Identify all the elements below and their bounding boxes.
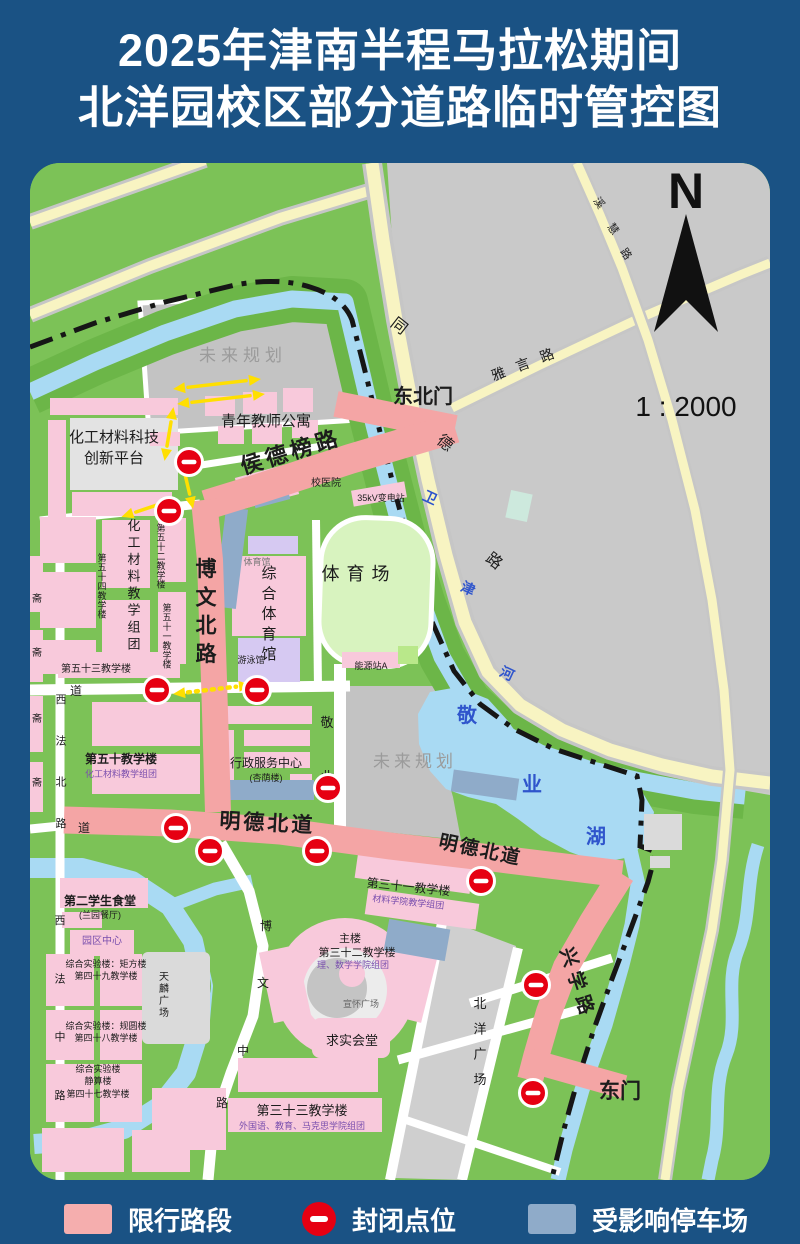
- map-label: 综合实验楼：矩方楼: [65, 958, 146, 969]
- map-label: 湖: [586, 825, 606, 848]
- legend-item-parking: 受影响停车场: [528, 1194, 748, 1244]
- map-label: 理、数学学院组团: [317, 959, 389, 970]
- map-label: 业: [522, 773, 542, 796]
- map-label: 能源站A: [354, 660, 387, 671]
- closure-bar: [150, 688, 165, 693]
- closure-bar: [250, 688, 265, 693]
- map-label: 第四十七教学楼: [66, 1088, 129, 1099]
- legend: 限行路段 封闭点位 受影响停车场: [0, 1194, 800, 1244]
- map-label: 创新平台: [84, 450, 144, 467]
- map-canvas: N1 : 2000未来规划未来规划青年教师公寓化工材料科技创新平台侯德榜路东北门…: [30, 163, 770, 1180]
- parking-swatch: [528, 1204, 576, 1234]
- map-label: 第五十三教学楼: [61, 662, 131, 675]
- map-label: 第五十四教学楼: [97, 552, 106, 620]
- map-label: 综合实验楼: [75, 1063, 120, 1074]
- map-label: N: [668, 163, 704, 219]
- map-label: 综合实验楼：规圆楼: [65, 1020, 146, 1031]
- map-shape: [216, 706, 312, 724]
- map-label: 园区中心: [82, 934, 122, 947]
- map-label: 静算楼: [84, 1075, 111, 1086]
- map-shape: [283, 388, 313, 412]
- map-label: 第四十八教学楼: [74, 1032, 137, 1043]
- restricted-road-swatch: [64, 1204, 112, 1234]
- closure-bar: [169, 826, 184, 831]
- map-label: 斋: [32, 776, 42, 789]
- map-shape: [238, 1058, 378, 1092]
- map-label: 化工材料科技: [69, 429, 159, 446]
- map-label: 斋: [32, 592, 42, 605]
- map-label: 中: [237, 1043, 249, 1058]
- closure-marker: [197, 838, 224, 865]
- map-shape: [48, 420, 66, 522]
- map-label: 第五十二教学楼: [156, 522, 165, 590]
- closure-bar: [526, 1091, 541, 1096]
- closure-marker: [163, 815, 190, 842]
- map-label: 35kV变电站: [357, 492, 405, 503]
- map-label: 体育馆: [243, 556, 270, 567]
- page-title: 2025年津南半程马拉松期间 北洋园校区部分道路临时管控图: [0, 22, 800, 136]
- map-label: 道: [78, 821, 90, 835]
- closure-bar: [310, 849, 325, 854]
- map-label: 斋: [32, 712, 42, 725]
- legend-item-restricted: 限行路段: [64, 1194, 232, 1244]
- map-label: 青年教师公寓: [221, 412, 311, 430]
- map-label: 斋: [32, 646, 42, 659]
- map-label: 宣怀广场: [343, 998, 379, 1009]
- map-label: 天麟广场: [159, 972, 169, 1019]
- page-title-line1: 2025年津南半程马拉松期间: [0, 22, 800, 79]
- map-label: (兰园餐厅): [79, 909, 121, 920]
- map-label: 第五十教学楼: [85, 751, 157, 766]
- closure-marker: [176, 449, 203, 476]
- stadium-field: [317, 516, 434, 668]
- map-label: 外国语、教育、马克思学院组团: [239, 1120, 365, 1131]
- closure-bar: [162, 509, 177, 514]
- closure-point-icon: [302, 1202, 336, 1236]
- closure-marker: [244, 677, 271, 704]
- closure-bar: [529, 983, 544, 988]
- legend-item-closure: 封闭点位: [302, 1194, 456, 1244]
- page: { "title": {"line1": "2025年津南半程马拉松期间", "…: [0, 0, 800, 1244]
- map-label: 明德北道: [219, 809, 316, 838]
- closure-marker: [156, 498, 183, 525]
- parking-lot: [218, 780, 314, 800]
- map-label: 敬: [320, 715, 333, 730]
- map-frame: N1 : 2000未来规划未来规划青年教师公寓化工材料科技创新平台侯德榜路东北门…: [30, 163, 770, 1180]
- map-label: 第三十二教学楼: [319, 945, 396, 959]
- map-label: 校医院: [311, 476, 341, 489]
- map-label: 道: [70, 684, 82, 698]
- legend-restricted-label: 限行路段: [128, 1201, 232, 1238]
- map-shape: [644, 814, 682, 850]
- map-shape: [244, 730, 310, 746]
- page-title-line2: 北洋园校区部分道路临时管控图: [0, 79, 800, 136]
- map-label: 第二学生食堂: [64, 893, 136, 908]
- map-label: 化工材料教学组团: [85, 768, 157, 779]
- map-label: 1 : 2000: [635, 391, 736, 422]
- map-label: 第三十三教学楼: [256, 1103, 347, 1118]
- closure-bar: [474, 879, 489, 884]
- legend-closure-label: 封闭点位: [352, 1201, 456, 1238]
- closure-marker: [468, 868, 495, 895]
- map-label: 文: [257, 975, 269, 990]
- closure-bar: [182, 460, 197, 465]
- map-label: 路: [216, 1095, 228, 1110]
- map-label: 化工材料教学组团: [127, 518, 140, 651]
- legend-parking-label: 受影响停车场: [592, 1201, 748, 1238]
- map-shape: [102, 520, 150, 588]
- map-shape: [398, 646, 418, 664]
- map-label: 体育场: [322, 564, 397, 584]
- map-shape: [142, 952, 210, 1044]
- map-shape: [102, 600, 150, 652]
- map-shape: [248, 536, 298, 554]
- map-label: 东北门: [393, 384, 453, 408]
- map-label: 敬: [456, 704, 478, 727]
- map-label: 游泳馆: [237, 654, 264, 665]
- closure-bar: [321, 786, 336, 791]
- map-label: 未来规划: [199, 346, 287, 365]
- map-shape: [40, 517, 96, 563]
- map-shape: [132, 1130, 190, 1172]
- closure-marker: [520, 1080, 547, 1107]
- map-shape: [42, 1128, 124, 1172]
- closure-marker: [144, 677, 171, 704]
- map-shape: [40, 572, 96, 628]
- map-label: 求实会堂: [326, 1033, 378, 1048]
- closure-marker: [523, 972, 550, 999]
- map-label: 综合体育馆: [261, 565, 276, 663]
- closure-marker: [315, 775, 342, 802]
- map-label: 主楼: [339, 931, 361, 945]
- map-shape: [92, 702, 200, 746]
- map-label: 第五十一教学楼: [162, 602, 171, 670]
- map-label: 第四十九教学楼: [74, 970, 137, 981]
- map-label: 行政服务中心: [230, 755, 302, 770]
- map-label: 东门: [599, 1079, 641, 1103]
- map-label: (杏荫楼): [250, 772, 283, 783]
- map-shape: [50, 398, 178, 415]
- map-label: 未来规划: [373, 752, 457, 771]
- closure-marker: [304, 838, 331, 865]
- map-shape: [650, 856, 670, 868]
- closure-bar: [203, 849, 218, 854]
- map-label: 博: [260, 918, 272, 933]
